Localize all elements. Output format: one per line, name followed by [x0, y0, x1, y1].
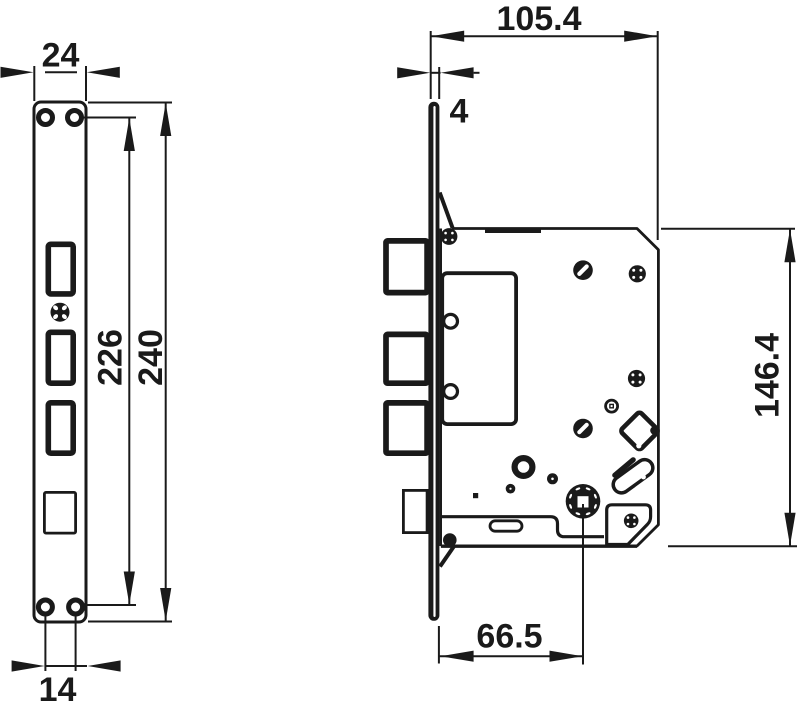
svg-text:4: 4 — [450, 93, 469, 131]
svg-text:105.4: 105.4 — [496, 0, 581, 38]
svg-text:66.5: 66.5 — [476, 618, 542, 656]
svg-text:226: 226 — [92, 329, 130, 386]
svg-text:240: 240 — [132, 329, 170, 386]
svg-text:146.4: 146.4 — [749, 333, 787, 418]
svg-text:24: 24 — [42, 37, 80, 75]
svg-text:14: 14 — [39, 671, 77, 709]
